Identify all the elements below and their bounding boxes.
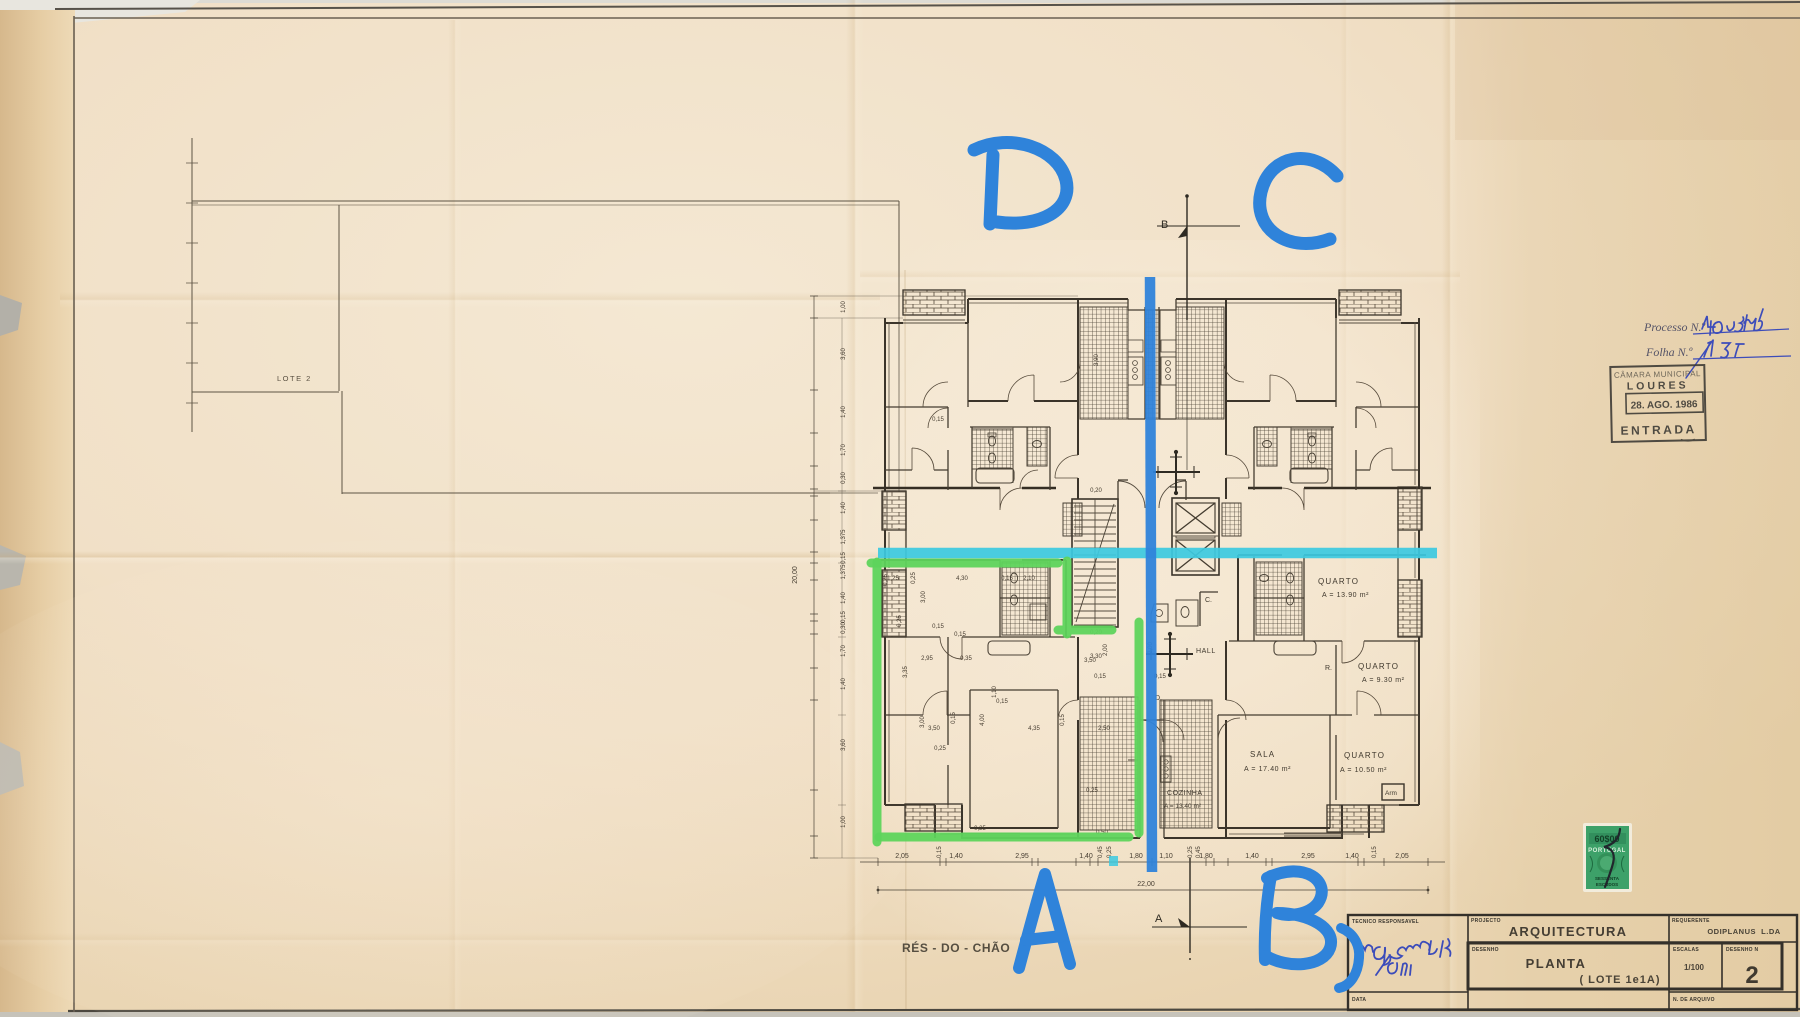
svg-text:1,40: 1,40 <box>1245 853 1259 860</box>
svg-text:( LOTE 1e1A): ( LOTE 1e1A) <box>1579 974 1660 986</box>
svg-text:QUARTO: QUARTO <box>1358 662 1399 671</box>
svg-text:1,40: 1,40 <box>1079 853 1093 860</box>
svg-text:0,15: 0,15 <box>1001 576 1013 582</box>
svg-text:R.: R. <box>1325 665 1332 672</box>
svg-text:3,50: 3,50 <box>928 726 940 732</box>
svg-text:0,25: 0,25 <box>1086 788 1098 794</box>
svg-text:ODIPLANUS L.DA: ODIPLANUS L.DA <box>1707 927 1780 936</box>
svg-text:3,90: 3,90 <box>1094 354 1100 366</box>
svg-text:3,00: 3,00 <box>920 716 926 728</box>
svg-text:N. DE ARQUIVO: N. DE ARQUIVO <box>1673 997 1715 1003</box>
svg-text:0,15: 0,15 <box>932 624 944 630</box>
svg-text:4,35: 4,35 <box>1028 726 1040 732</box>
svg-text:4,00: 4,00 <box>980 714 986 726</box>
svg-text:COZINHA: COZINHA <box>1167 790 1203 797</box>
svg-text:CÂMARA MUNICIPAL: CÂMARA MUNICIPAL <box>1614 369 1701 380</box>
svg-text:DESENHO N: DESENHO N <box>1726 947 1759 953</box>
svg-text:ENTRADA: ENTRADA <box>1620 422 1696 438</box>
svg-text:0,15: 0,15 <box>996 699 1008 705</box>
svg-text:PLANTA: PLANTA <box>1526 956 1587 971</box>
svg-text:1,80: 1,80 <box>1129 853 1143 860</box>
svg-text:2,95: 2,95 <box>1015 853 1029 860</box>
svg-text:ESCALAS: ESCALAS <box>1673 947 1699 953</box>
svg-text:0,15: 0,15 <box>1094 674 1106 680</box>
svg-text:1,25: 1,25 <box>887 576 899 582</box>
svg-text:0,15: 0,15 <box>937 846 943 858</box>
svg-text:ARQUITECTURA: ARQUITECTURA <box>1509 924 1627 939</box>
svg-text:0,15: 0,15 <box>951 712 957 724</box>
svg-text:2,95: 2,95 <box>1301 853 1315 860</box>
svg-text:Processo N.º: Processo N.º <box>1643 320 1706 334</box>
svg-text:1/100: 1/100 <box>1684 963 1705 972</box>
svg-text:2,05: 2,05 <box>1395 853 1409 860</box>
svg-text:QUARTO: QUARTO <box>1318 577 1359 586</box>
svg-text:1,00: 1,00 <box>841 301 847 313</box>
svg-text:22,00: 22,00 <box>1137 881 1155 888</box>
svg-text:2,10: 2,10 <box>1023 576 1035 582</box>
svg-text:0,15: 0,15 <box>1060 714 1066 726</box>
svg-text:QUARTO: QUARTO <box>1344 751 1385 760</box>
svg-text:REQUERENTE: REQUERENTE <box>1672 918 1710 924</box>
svg-text:PROJECTO: PROJECTO <box>1471 918 1501 924</box>
svg-text:0,45: 0,45 <box>1098 846 1104 858</box>
svg-text:A = 10.50 m²: A = 10.50 m² <box>1340 767 1387 774</box>
svg-text:TECNICO RESPONSAVEL: TECNICO RESPONSAVEL <box>1352 919 1419 925</box>
svg-text:A = 9.30 m²: A = 9.30 m² <box>1362 677 1405 684</box>
svg-text:0,15: 0,15 <box>932 417 944 423</box>
svg-text:3,35: 3,35 <box>903 666 909 678</box>
svg-text:0,35: 0,35 <box>960 656 972 662</box>
svg-text:0,25: 0,25 <box>974 826 986 832</box>
svg-text:28. AGO. 1986: 28. AGO. 1986 <box>1631 399 1699 411</box>
svg-text:0,25: 0,25 <box>897 615 903 627</box>
svg-text:1,40: 1,40 <box>949 853 963 860</box>
svg-text:B: B <box>1161 219 1168 231</box>
svg-text:RÉS - DO - CHÃO: RÉS - DO - CHÃO <box>902 940 1010 955</box>
svg-text:DESENHO: DESENHO <box>1472 947 1499 953</box>
svg-text:3,50: 3,50 <box>1084 658 1096 664</box>
svg-text:Folha N.º: Folha N.º <box>1645 345 1693 359</box>
svg-text:0,45: 0,45 <box>1196 846 1202 858</box>
svg-text:A = 13.90 m²: A = 13.90 m² <box>1322 592 1369 599</box>
svg-text:2,95: 2,95 <box>921 656 933 662</box>
svg-text:C.: C. <box>1205 597 1212 604</box>
svg-text:LOURES: LOURES <box>1627 379 1689 392</box>
svg-text:1,40: 1,40 <box>1345 853 1359 860</box>
svg-text:0,15: 0,15 <box>954 632 966 638</box>
svg-text:HALL: HALL <box>1196 648 1216 655</box>
svg-text:0,25: 0,25 <box>883 574 889 586</box>
svg-text:1,10: 1,10 <box>992 686 998 698</box>
svg-text:0,20: 0,20 <box>1090 488 1102 494</box>
svg-text:3,00: 3,00 <box>921 591 927 603</box>
svg-text:SALA: SALA <box>1250 750 1275 759</box>
svg-text:A = 13.40 m²: A = 13.40 m² <box>1164 803 1202 810</box>
svg-text:2,00: 2,00 <box>1103 644 1109 656</box>
svg-text:1,10: 1,10 <box>1159 853 1173 860</box>
svg-text:2: 2 <box>1745 962 1758 989</box>
svg-text:LOTE 2: LOTE 2 <box>277 374 312 383</box>
svg-text:0,25: 0,25 <box>1188 846 1194 858</box>
svg-text:0,25: 0,25 <box>934 746 946 752</box>
svg-text:0,25: 0,25 <box>911 572 917 584</box>
svg-text:20,00: 20,00 <box>792 566 799 584</box>
svg-text:A: A <box>1155 913 1163 925</box>
svg-text:0,15: 0,15 <box>1372 846 1378 858</box>
svg-text:2,50: 2,50 <box>1098 726 1110 732</box>
svg-text:Arm: Arm <box>1385 790 1397 797</box>
svg-text:A = 17.40 m²: A = 17.40 m² <box>1244 766 1291 773</box>
svg-text:2,05: 2,05 <box>895 853 909 860</box>
svg-text:4,30: 4,30 <box>956 576 968 582</box>
svg-text:DATA: DATA <box>1352 997 1366 1003</box>
